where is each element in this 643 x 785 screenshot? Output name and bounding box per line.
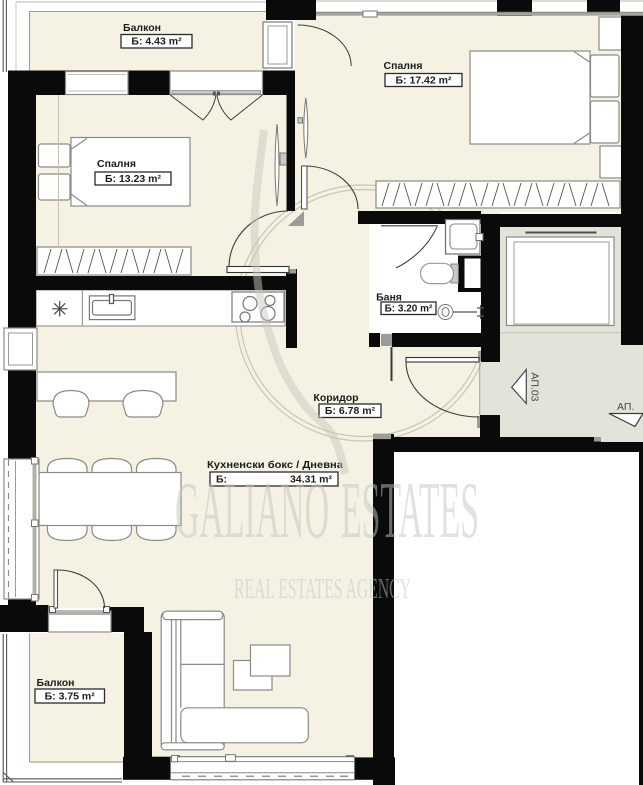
svg-text:Балкон: Балкон [37,677,75,689]
svg-text:Б: 3.75 m²: Б: 3.75 m² [45,691,96,703]
svg-text:Балкон: Балкон [123,22,161,34]
svg-text:Спалня: Спалня [97,158,136,170]
svg-text:GALIANO: GALIANO [175,467,329,555]
svg-text:REAL ESTATES AGENCY: REAL ESTATES AGENCY [234,573,411,605]
svg-text:Б: 3.20 m²: Б: 3.20 m² [385,304,433,315]
svg-text:Б: 4.43 m²: Б: 4.43 m² [131,36,182,48]
svg-text:Б: 13.23 m²: Б: 13.23 m² [105,173,161,185]
svg-text:Коридор: Коридор [313,392,358,404]
svg-text:АП.: АП. [617,401,634,413]
svg-text:АП.03: АП.03 [529,372,541,401]
svg-text:Спалня: Спалня [384,60,423,72]
svg-text:Б: 17.42 m²: Б: 17.42 m² [396,75,452,87]
svg-text:Б: 6.78 m²: Б: 6.78 m² [325,405,376,417]
svg-text:ESTATES: ESTATES [341,467,479,555]
